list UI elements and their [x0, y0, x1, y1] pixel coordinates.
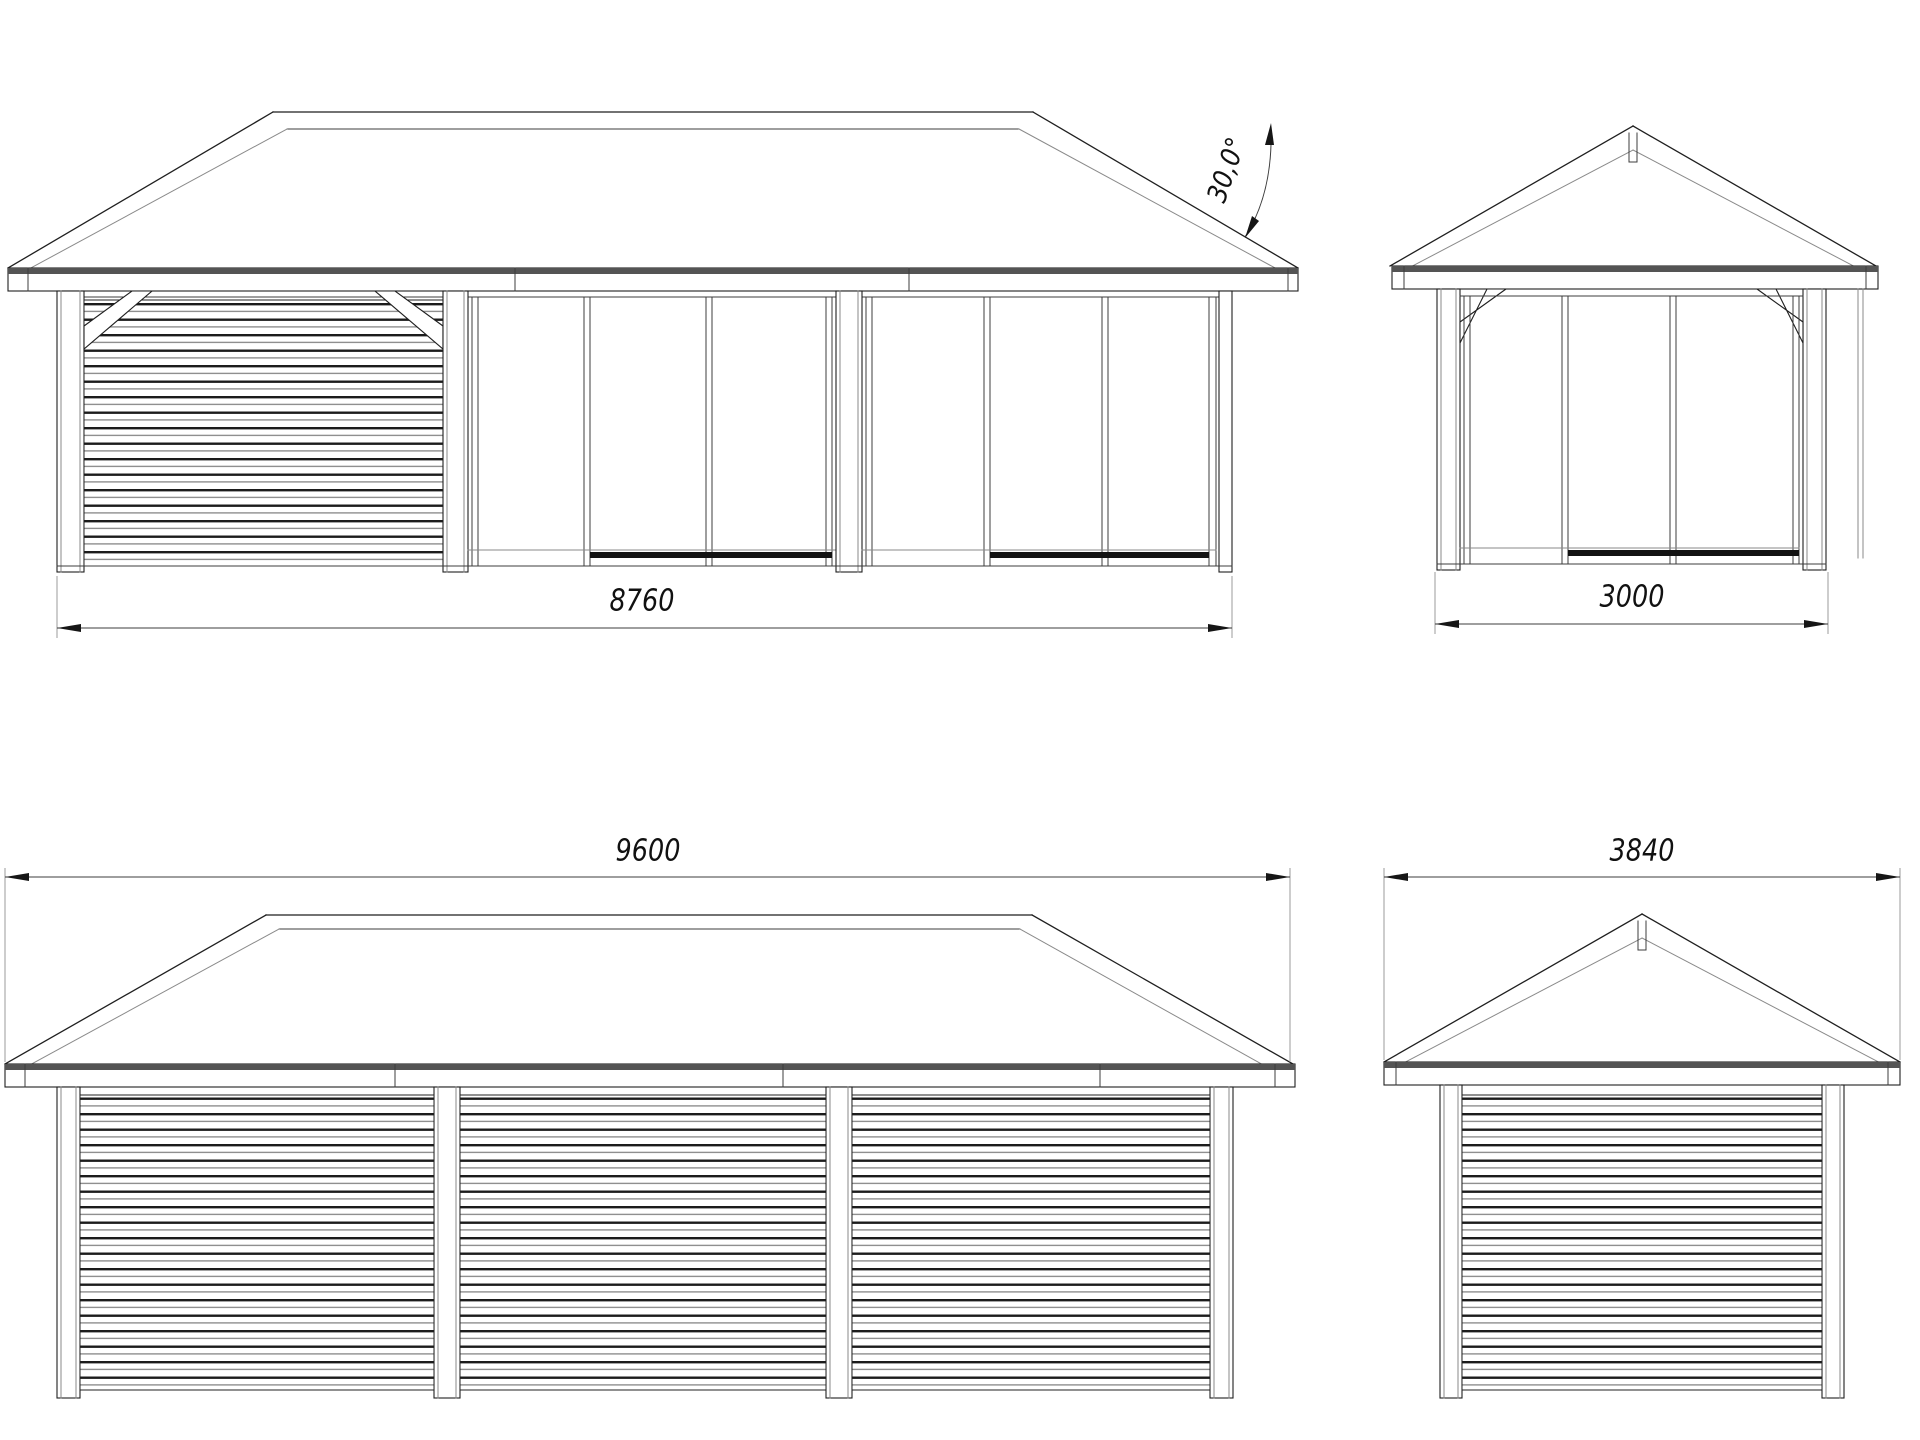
rear-width-dimension-label: 9600 [616, 834, 681, 869]
side-elevation-top-view [1390, 126, 1878, 634]
front-elevation-view [8, 112, 1298, 638]
side-elevation-bottom-view [1384, 868, 1900, 1398]
technical-drawing-page: 8760 30,0° 3000 9600 3840 [0, 0, 1920, 1440]
front-width-dimension-label: 8760 [610, 584, 675, 619]
side-bottom-width-dimension-label: 3840 [1610, 834, 1675, 869]
side-top-width-dimension-label: 3000 [1600, 580, 1665, 615]
rear-elevation-view [5, 868, 1295, 1398]
elevation-drawing-canvas [0, 0, 1920, 1440]
